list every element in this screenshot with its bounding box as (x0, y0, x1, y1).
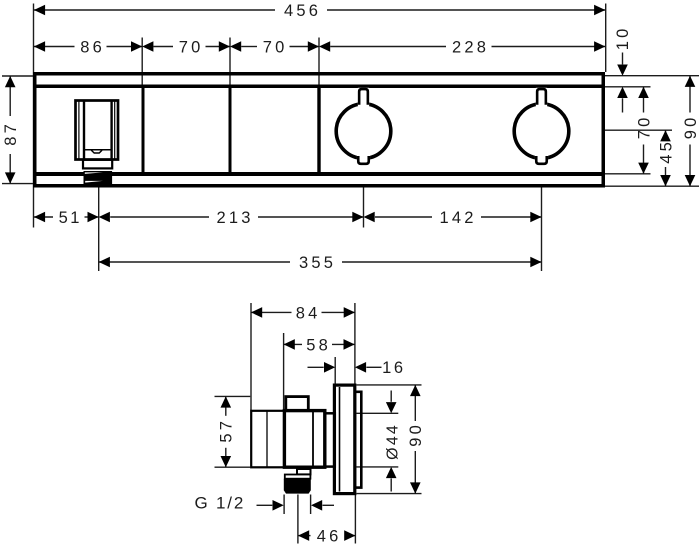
svg-text:90: 90 (682, 115, 700, 140)
svg-text:10: 10 (614, 26, 632, 51)
svg-text:90: 90 (407, 422, 425, 447)
svg-text:456: 456 (284, 2, 321, 20)
svg-text:G 1/2: G 1/2 (195, 494, 246, 513)
svg-text:142: 142 (440, 209, 477, 227)
svg-text:70: 70 (263, 38, 288, 56)
svg-text:45: 45 (657, 139, 675, 164)
svg-text:228: 228 (452, 38, 489, 56)
svg-text:84: 84 (296, 304, 321, 322)
svg-text:57: 57 (218, 418, 236, 443)
svg-text:70: 70 (635, 115, 653, 140)
svg-text:Ø44: Ø44 (384, 423, 401, 460)
svg-text:355: 355 (299, 254, 336, 272)
svg-text:87: 87 (2, 121, 20, 146)
svg-text:46: 46 (317, 528, 342, 546)
svg-text:70: 70 (179, 38, 204, 56)
svg-text:16: 16 (382, 359, 405, 377)
svg-text:51: 51 (59, 209, 82, 227)
svg-text:86: 86 (80, 38, 105, 56)
svg-text:58: 58 (306, 336, 331, 354)
svg-text:213: 213 (217, 209, 254, 227)
